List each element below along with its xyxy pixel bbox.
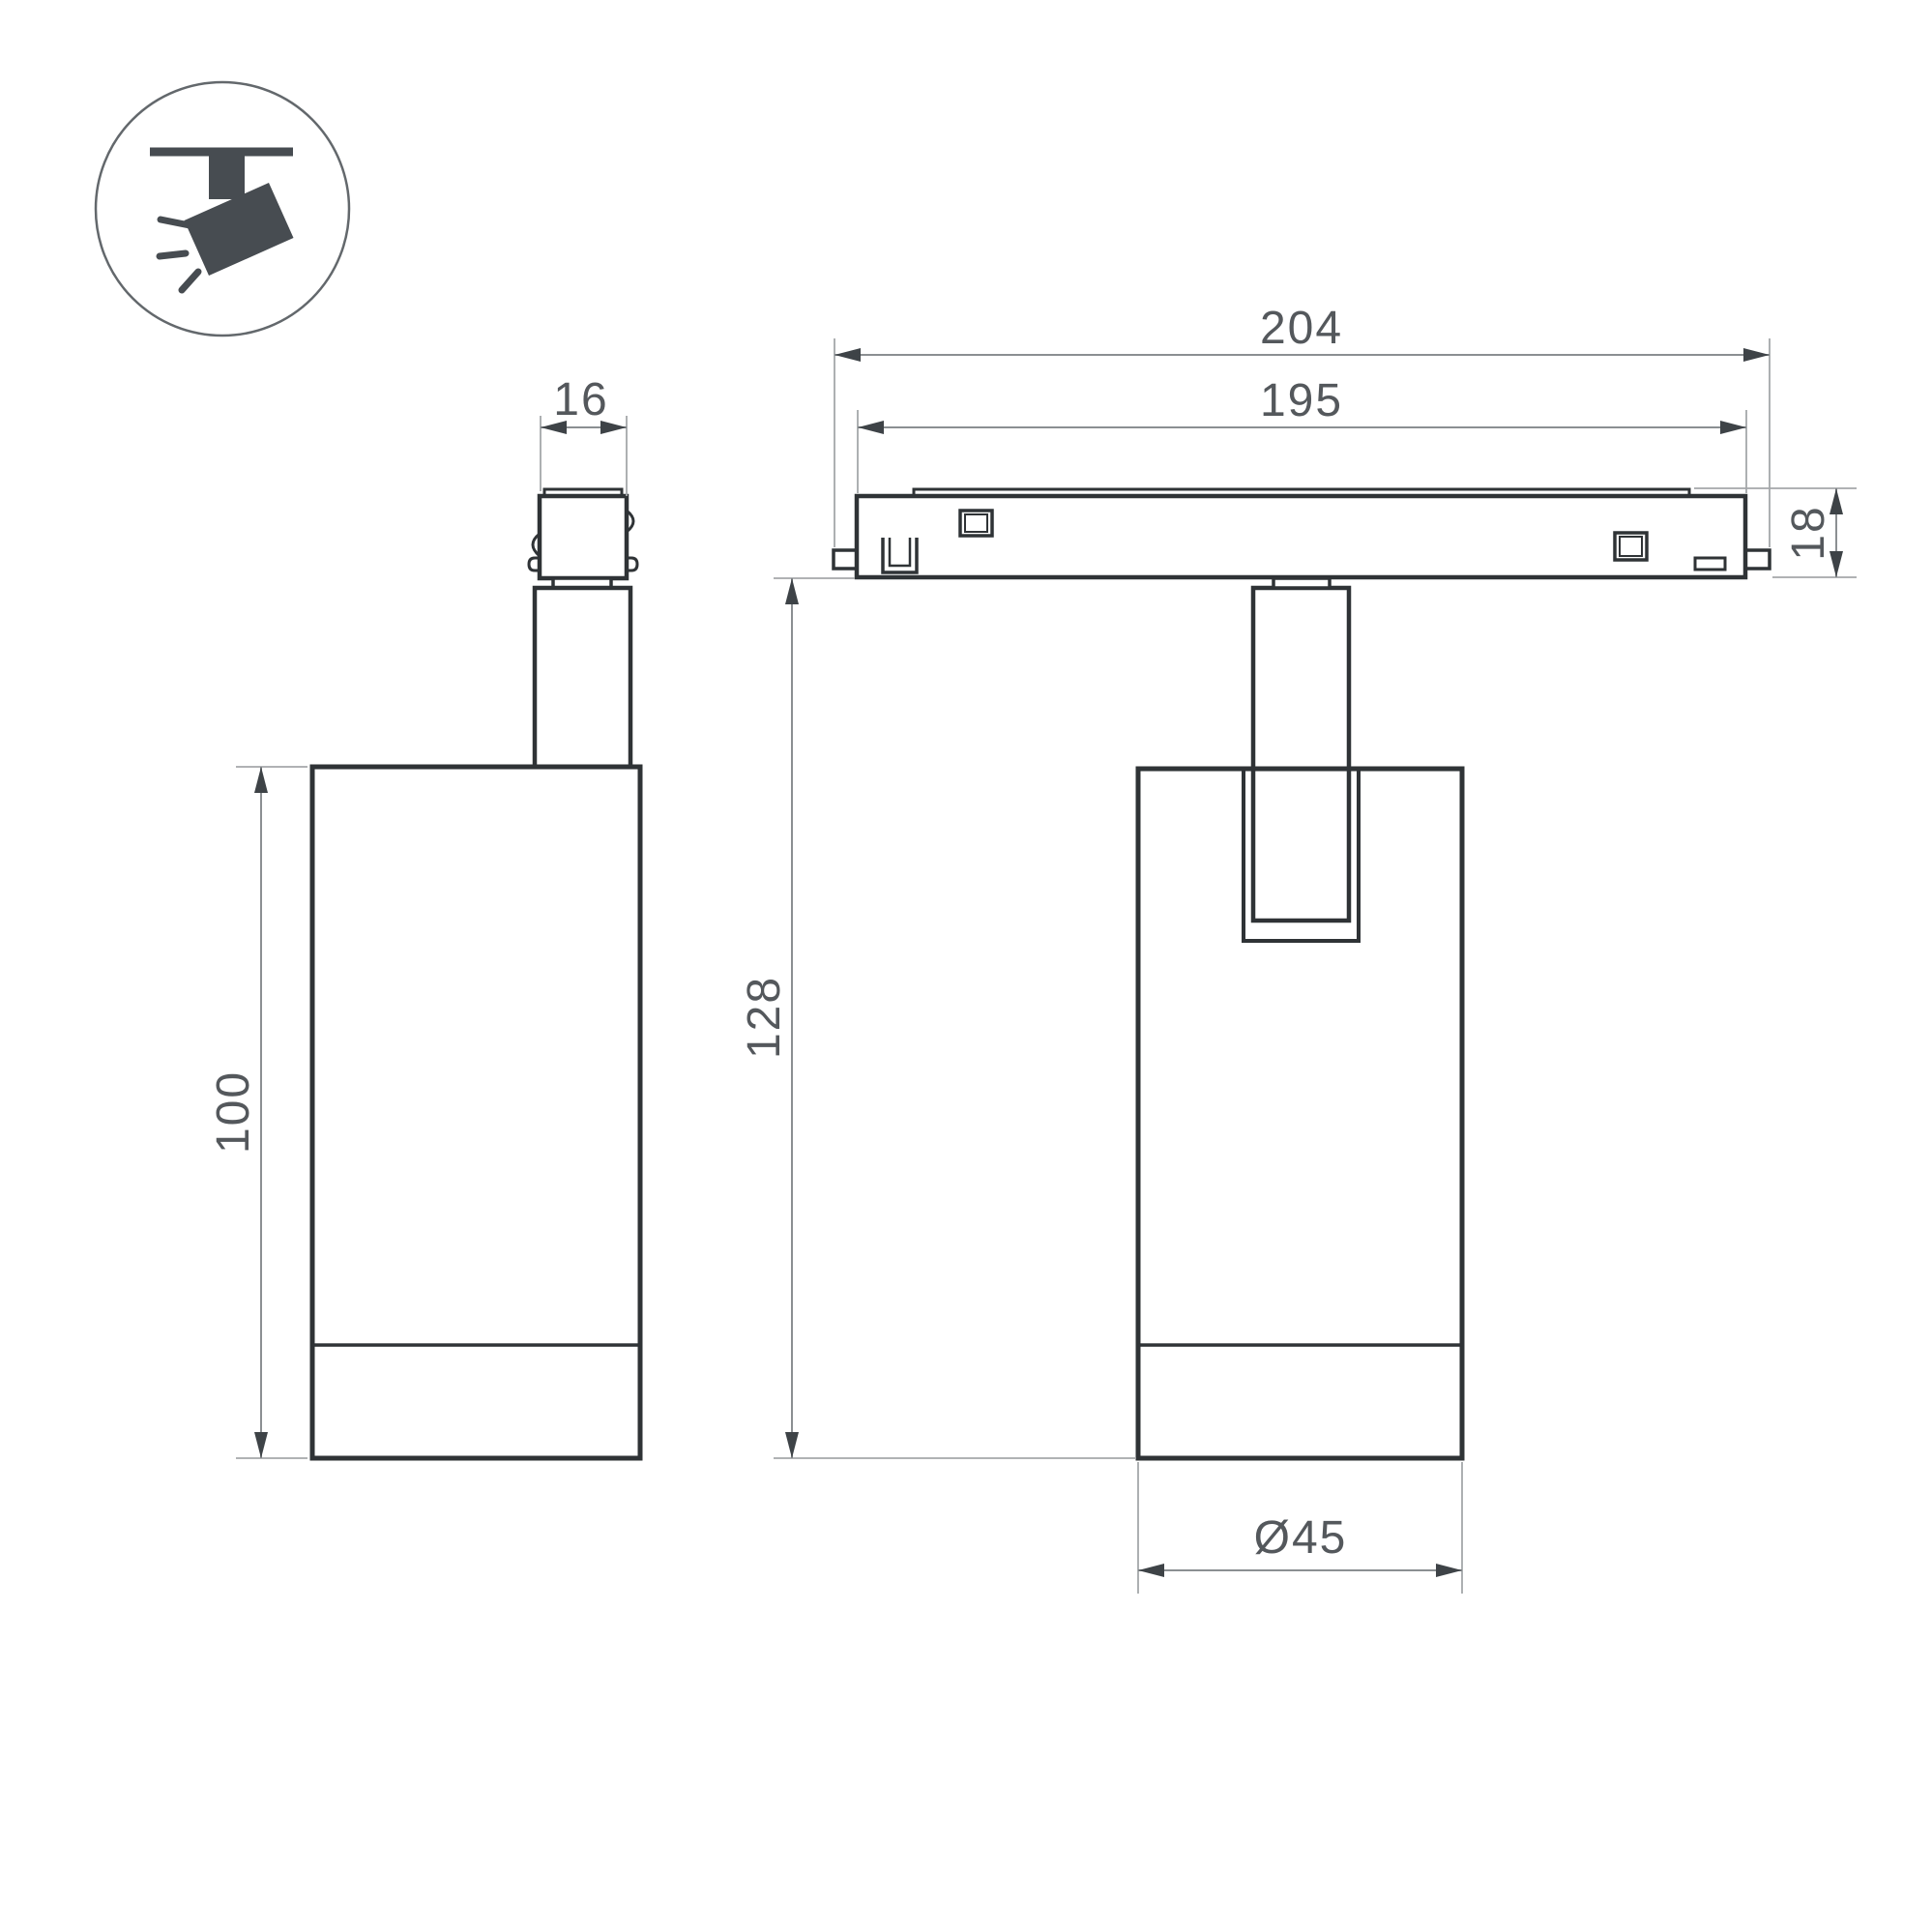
front-neck bbox=[1273, 578, 1330, 588]
front-stem bbox=[1253, 588, 1349, 921]
dimension-adapter-width: 16 bbox=[541, 374, 627, 496]
dimension-label: 18 bbox=[1783, 505, 1834, 560]
arrowhead-down bbox=[254, 1432, 268, 1458]
arrowhead-up bbox=[254, 767, 268, 793]
dimension-label: 204 bbox=[1260, 303, 1343, 354]
side-adapter-head bbox=[540, 496, 627, 578]
track-right-end-tab bbox=[1745, 550, 1770, 569]
front-view bbox=[834, 489, 1770, 1458]
side-view bbox=[312, 489, 640, 1458]
dimension-label: 195 bbox=[1260, 375, 1343, 426]
track-right-slot bbox=[1695, 558, 1725, 570]
icon-mount-stem bbox=[209, 152, 245, 199]
arrowhead-right bbox=[1720, 421, 1746, 434]
dimension-rail-length: 195 bbox=[858, 375, 1746, 493]
arrowhead-down bbox=[785, 1432, 799, 1458]
side-lamp-body bbox=[312, 767, 640, 1458]
dimension-label: Ø45 bbox=[1254, 1512, 1348, 1564]
arrowhead-right bbox=[1436, 1564, 1462, 1577]
icon-light-ray bbox=[160, 253, 186, 256]
dimension-label: 128 bbox=[739, 976, 790, 1059]
arrowhead-left bbox=[858, 421, 884, 434]
dimension-label: 100 bbox=[208, 1070, 259, 1154]
dimension-drawing-canvas: 16 100 204 195 bbox=[0, 0, 1932, 1932]
technical-drawing: 16 100 204 195 bbox=[0, 0, 1932, 1932]
arrowhead-up bbox=[785, 578, 799, 604]
dimension-body-diameter: Ø45 bbox=[1138, 1462, 1462, 1594]
arrowhead-left bbox=[1138, 1564, 1164, 1577]
track-left-end-tab bbox=[834, 550, 857, 569]
dimension-overall-height: 128 bbox=[739, 578, 1136, 1458]
arrowhead-right bbox=[1743, 348, 1770, 362]
side-stem bbox=[535, 588, 630, 767]
dimension-label: 16 bbox=[553, 374, 608, 425]
arrowhead-left bbox=[834, 348, 861, 362]
dimension-body-height: 100 bbox=[208, 767, 307, 1458]
spotlight-type-icon bbox=[96, 82, 349, 336]
